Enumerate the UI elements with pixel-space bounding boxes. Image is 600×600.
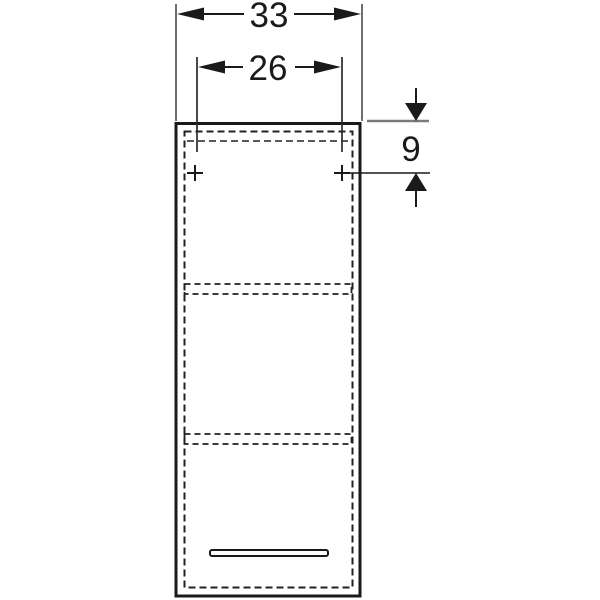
arrow-left-icon (177, 8, 204, 21)
technical-drawing-page: 33 26 9 (0, 0, 600, 600)
dimension-outer-width-value: 33 (250, 0, 289, 35)
arrow-right-icon (334, 8, 361, 21)
arrow-right-icon (314, 61, 341, 74)
door-handle (210, 550, 328, 556)
arrow-up-icon (405, 173, 427, 191)
arrow-down-icon (405, 103, 427, 121)
dimension-fixing-spacing-value: 26 (249, 49, 288, 88)
cabinet-outer-outline (176, 124, 360, 597)
cabinet-elevation-drawing: 33 26 9 (0, 0, 600, 600)
cabinet-body (176, 124, 360, 597)
dimension-fixing-top-offset-value: 9 (401, 130, 420, 169)
arrow-left-icon (198, 61, 225, 74)
